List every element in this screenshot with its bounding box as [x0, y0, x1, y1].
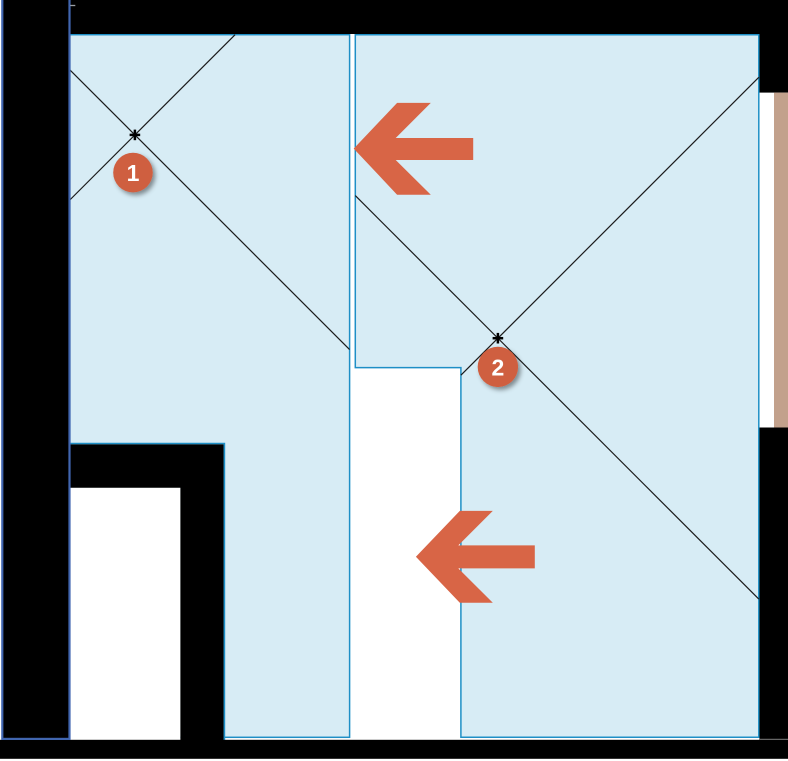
svg-text:2: 2	[492, 354, 505, 380]
svg-text:1: 1	[127, 160, 140, 186]
